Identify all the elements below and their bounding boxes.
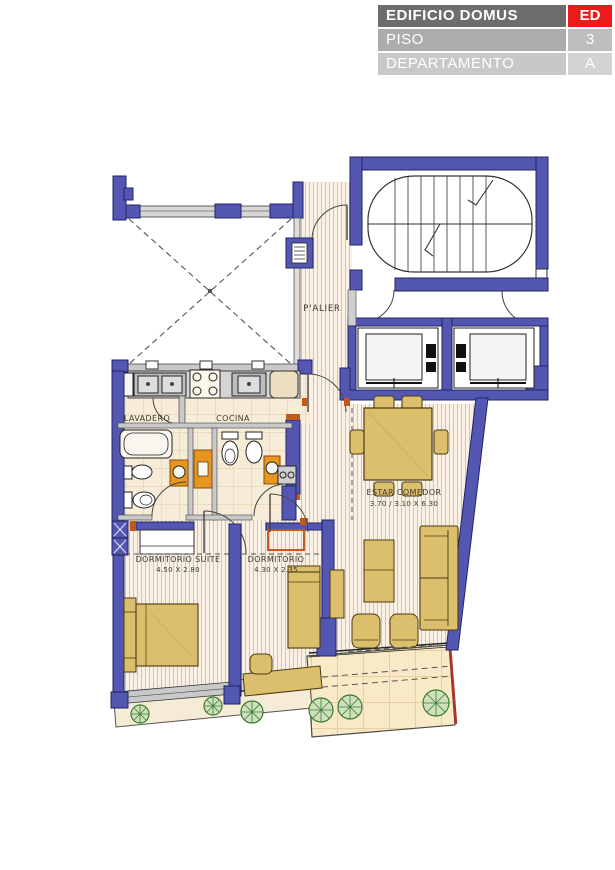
room-label-dormitorio-suite: DORMITORIO SUITE xyxy=(136,555,221,564)
stair-wall-top xyxy=(350,157,548,170)
stair-wall-left xyxy=(350,157,362,245)
title-row-unit: DEPARTAMENTO A xyxy=(378,53,612,75)
suite-closet xyxy=(140,530,194,554)
room-dim-dormitorio: 4.30 X 2.35 xyxy=(254,566,298,574)
void-window-band xyxy=(126,206,293,217)
floor-label: PISO xyxy=(378,29,566,51)
elevator-cab-left xyxy=(366,334,422,380)
elevator-mullion xyxy=(442,318,452,400)
stair-wall-right xyxy=(536,157,548,269)
bath-divider-2 xyxy=(212,428,217,520)
bed xyxy=(288,572,320,648)
suite-left-wall xyxy=(113,555,124,700)
room-dim-dormitorio-suite: 4.50 X 2.80 xyxy=(156,566,200,574)
laundry-unit xyxy=(278,466,296,484)
floor-value: 3 xyxy=(568,29,612,51)
armchair xyxy=(390,614,418,648)
palier-nw-column xyxy=(293,182,303,218)
floor-plan-page: EDIFICIO DOMUS ED PISO 3 DEPARTAMENTO A xyxy=(0,0,615,865)
unit-value: A xyxy=(568,53,612,75)
room-label-estar-comedor: ESTAR COMEDOR xyxy=(366,488,441,497)
void-center-mark xyxy=(208,289,212,293)
room-label-palier: P'ALIER xyxy=(303,304,340,314)
cabinet-basin xyxy=(198,462,208,476)
room-label-cocina: COCINA xyxy=(216,414,250,423)
door-jamb xyxy=(302,398,308,406)
wall-chunk xyxy=(270,204,293,218)
floor-plan-drawing: P'ALIER xyxy=(0,0,615,865)
suite-entry-wall xyxy=(136,522,194,530)
bidet xyxy=(132,465,152,479)
column-stub xyxy=(124,188,133,200)
landing-wall xyxy=(348,290,356,326)
hall-wall-b xyxy=(186,515,252,520)
stair-wall-left-stub xyxy=(350,270,362,290)
window-vent xyxy=(200,361,212,369)
elevator-motor xyxy=(456,362,466,372)
drain xyxy=(170,382,174,386)
hall-wall-a xyxy=(118,515,152,520)
coffee-table xyxy=(364,540,394,602)
plant xyxy=(131,705,149,723)
stair-wall-bottom xyxy=(395,278,548,291)
toilet-tank xyxy=(222,432,238,439)
bath-top-wall xyxy=(118,423,292,428)
wall-block xyxy=(112,360,128,372)
title-row-floor: PISO 3 xyxy=(378,29,612,51)
elevator-motor xyxy=(426,344,436,358)
wall-chunk xyxy=(215,204,241,218)
void-shaft xyxy=(113,176,303,364)
elevator-cab-right xyxy=(470,334,526,380)
elevator-motor xyxy=(456,344,466,358)
room-label-dormitorio: DORMITORIO xyxy=(248,555,305,564)
bidet xyxy=(246,441,262,463)
duct-grille xyxy=(292,243,307,263)
drain xyxy=(146,382,150,386)
chair xyxy=(350,430,364,454)
unit-label: DEPARTAMENTO xyxy=(378,53,566,75)
title-row-building: EDIFICIO DOMUS ED xyxy=(378,5,612,27)
drain xyxy=(247,382,251,386)
elevator-motor xyxy=(426,362,436,372)
headboard-nightstands xyxy=(124,598,136,672)
plant xyxy=(309,698,333,722)
elevators xyxy=(340,290,548,400)
window-vent xyxy=(146,361,158,369)
building-name: EDIFICIO DOMUS xyxy=(378,5,566,27)
toilet-tank xyxy=(124,492,132,508)
corner-block xyxy=(111,692,128,708)
basin xyxy=(173,466,185,478)
toilet xyxy=(222,441,238,465)
room-dim-estar-comedor: 3.70 / 3.10 X 6.30 xyxy=(370,500,438,508)
plant xyxy=(338,695,362,719)
plant xyxy=(241,701,263,723)
window-vent xyxy=(252,361,264,369)
title-block: EDIFICIO DOMUS ED PISO 3 DEPARTAMENTO A xyxy=(378,5,612,77)
fridge xyxy=(270,371,298,398)
plant xyxy=(204,697,222,715)
landing-door-arc-left xyxy=(362,290,394,322)
bidet-tank xyxy=(124,466,132,479)
room-label-lavadero: LAVADERO xyxy=(124,414,170,423)
bidet-tank xyxy=(246,432,262,439)
door-jamb xyxy=(286,414,300,420)
plant xyxy=(423,690,449,716)
bed-suite xyxy=(136,604,198,666)
building-code-badge: ED xyxy=(568,5,612,27)
chair xyxy=(434,430,448,454)
basin xyxy=(266,462,278,474)
stairwell xyxy=(350,157,548,325)
door-jamb xyxy=(344,398,350,406)
suite-bedroom-divider xyxy=(229,524,241,696)
door-jamb xyxy=(130,521,136,531)
bedroom-entry-wall xyxy=(266,523,324,530)
armchair xyxy=(352,614,380,648)
desk-chair xyxy=(250,654,272,674)
bath-divider-1 xyxy=(188,428,193,520)
wall-chunk xyxy=(126,205,140,218)
side-cabinet xyxy=(330,570,344,618)
laundry-partition xyxy=(179,396,185,426)
corner-block xyxy=(224,686,240,704)
